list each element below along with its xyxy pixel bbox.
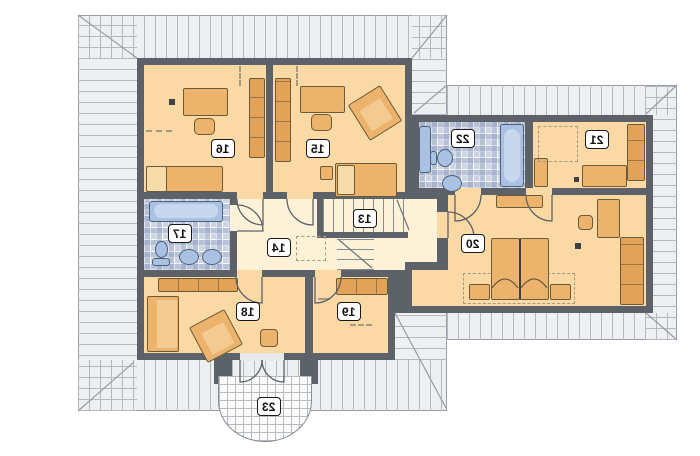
bathtub (500, 124, 524, 187)
room-number-18: 18 (241, 306, 254, 318)
nightstand (320, 166, 333, 180)
chair (311, 114, 332, 131)
wall-segment (552, 188, 646, 195)
floor-plan-canvas: 13 14 15 16 17 18 19 20 21 22 23 (0, 0, 700, 456)
nightstand (469, 284, 490, 300)
wall-segment (341, 270, 405, 277)
wardrobe (627, 124, 645, 181)
headroom-dashed-line (146, 130, 172, 132)
stairs-lower-flight (337, 238, 374, 270)
side-table (260, 329, 278, 347)
room-number-20: 20 (466, 238, 479, 250)
bathroom-counter (419, 126, 431, 173)
room-number-19: 19 (342, 306, 355, 318)
door-opening (230, 205, 237, 231)
door-opening (237, 192, 263, 199)
door-opening (287, 192, 313, 199)
wardrobe (158, 278, 238, 292)
double-bed-right (519, 238, 549, 300)
door-opening (315, 270, 341, 277)
chair (578, 215, 593, 230)
wall-segment (144, 192, 237, 199)
room-label-15: 15 (306, 139, 330, 158)
room-label-21: 21 (585, 130, 609, 149)
chimney-mark (574, 177, 579, 182)
room-label-23: 23 (257, 397, 281, 416)
wall-segment (230, 231, 237, 270)
balcony-threshold (240, 353, 284, 361)
room-number-16: 16 (216, 143, 229, 155)
wall-segment (437, 195, 448, 212)
roof-hatch-right-top (412, 15, 447, 115)
room-number-21: 21 (590, 134, 603, 146)
armchair-seat (360, 98, 393, 131)
wall-segment (481, 188, 526, 195)
wall-segment (405, 262, 448, 270)
bathtub-basin (504, 129, 520, 182)
room-label-14: 14 (267, 238, 291, 257)
chair (194, 118, 215, 135)
wall-segment (525, 122, 533, 188)
armchair-seat (201, 322, 234, 355)
wardrobe (275, 78, 291, 162)
bed-pillow (146, 166, 167, 192)
roof-hatch-wing-top (447, 85, 677, 115)
roof-hatch-wing-bottom (447, 313, 677, 340)
nightstand (550, 284, 571, 300)
room-label-16: 16 (211, 139, 235, 158)
wall-segment (437, 238, 448, 262)
bathtub-basin (154, 204, 218, 218)
headroom-dashed-line (318, 298, 330, 300)
washbasin (179, 249, 199, 265)
room-number-15: 15 (311, 143, 324, 155)
door-opening (237, 270, 262, 277)
room-20-bedroom-extension (412, 270, 448, 306)
headroom-dashed-line (239, 66, 241, 86)
headroom-dashed-line (296, 66, 298, 86)
bathtub (149, 201, 223, 222)
room-label-22: 22 (451, 129, 475, 148)
wardrobe (336, 278, 388, 295)
headroom-dashed-line (350, 324, 372, 326)
wardrobe (249, 78, 265, 158)
door-opening (526, 188, 552, 195)
room-number-22: 22 (456, 133, 469, 145)
room-number-14: 14 (272, 242, 285, 254)
washbasin (442, 175, 462, 192)
room-label-13: 13 (353, 209, 377, 228)
cabinet (496, 195, 543, 208)
wall-segment (144, 270, 237, 277)
wall-segment (262, 270, 315, 277)
bed-pillow (337, 165, 355, 195)
room-label-19: 19 (337, 302, 361, 321)
toilet-bowl (437, 149, 453, 167)
chimney-mark (169, 99, 175, 105)
double-bed-left (491, 238, 520, 300)
washbasin (202, 249, 222, 265)
headroom-dashed-outline (296, 236, 326, 261)
door-opening (437, 212, 448, 238)
room-number-17: 17 (173, 228, 186, 240)
headroom-dashed-outline (538, 126, 578, 162)
toilet-tank (152, 258, 170, 266)
roof-hatch-left (78, 15, 137, 411)
toilet-tank (430, 151, 437, 165)
wall-segment (263, 192, 287, 199)
chimney-mark (575, 243, 581, 249)
desk (582, 165, 627, 187)
wardrobe (534, 158, 548, 187)
room-label-17: 17 (168, 224, 192, 243)
room-number-13: 13 (358, 213, 371, 225)
room-label-20: 20 (461, 234, 485, 253)
desk (300, 86, 345, 113)
room-label-18: 18 (236, 302, 260, 321)
sofa (147, 296, 179, 352)
room-number-23: 23 (262, 401, 275, 413)
desk (597, 199, 620, 238)
desk (183, 88, 228, 116)
wardrobe (620, 237, 644, 305)
roof-hatch-valley (390, 313, 447, 360)
sofa-seat (157, 300, 177, 348)
toilet-bowl (155, 241, 168, 258)
